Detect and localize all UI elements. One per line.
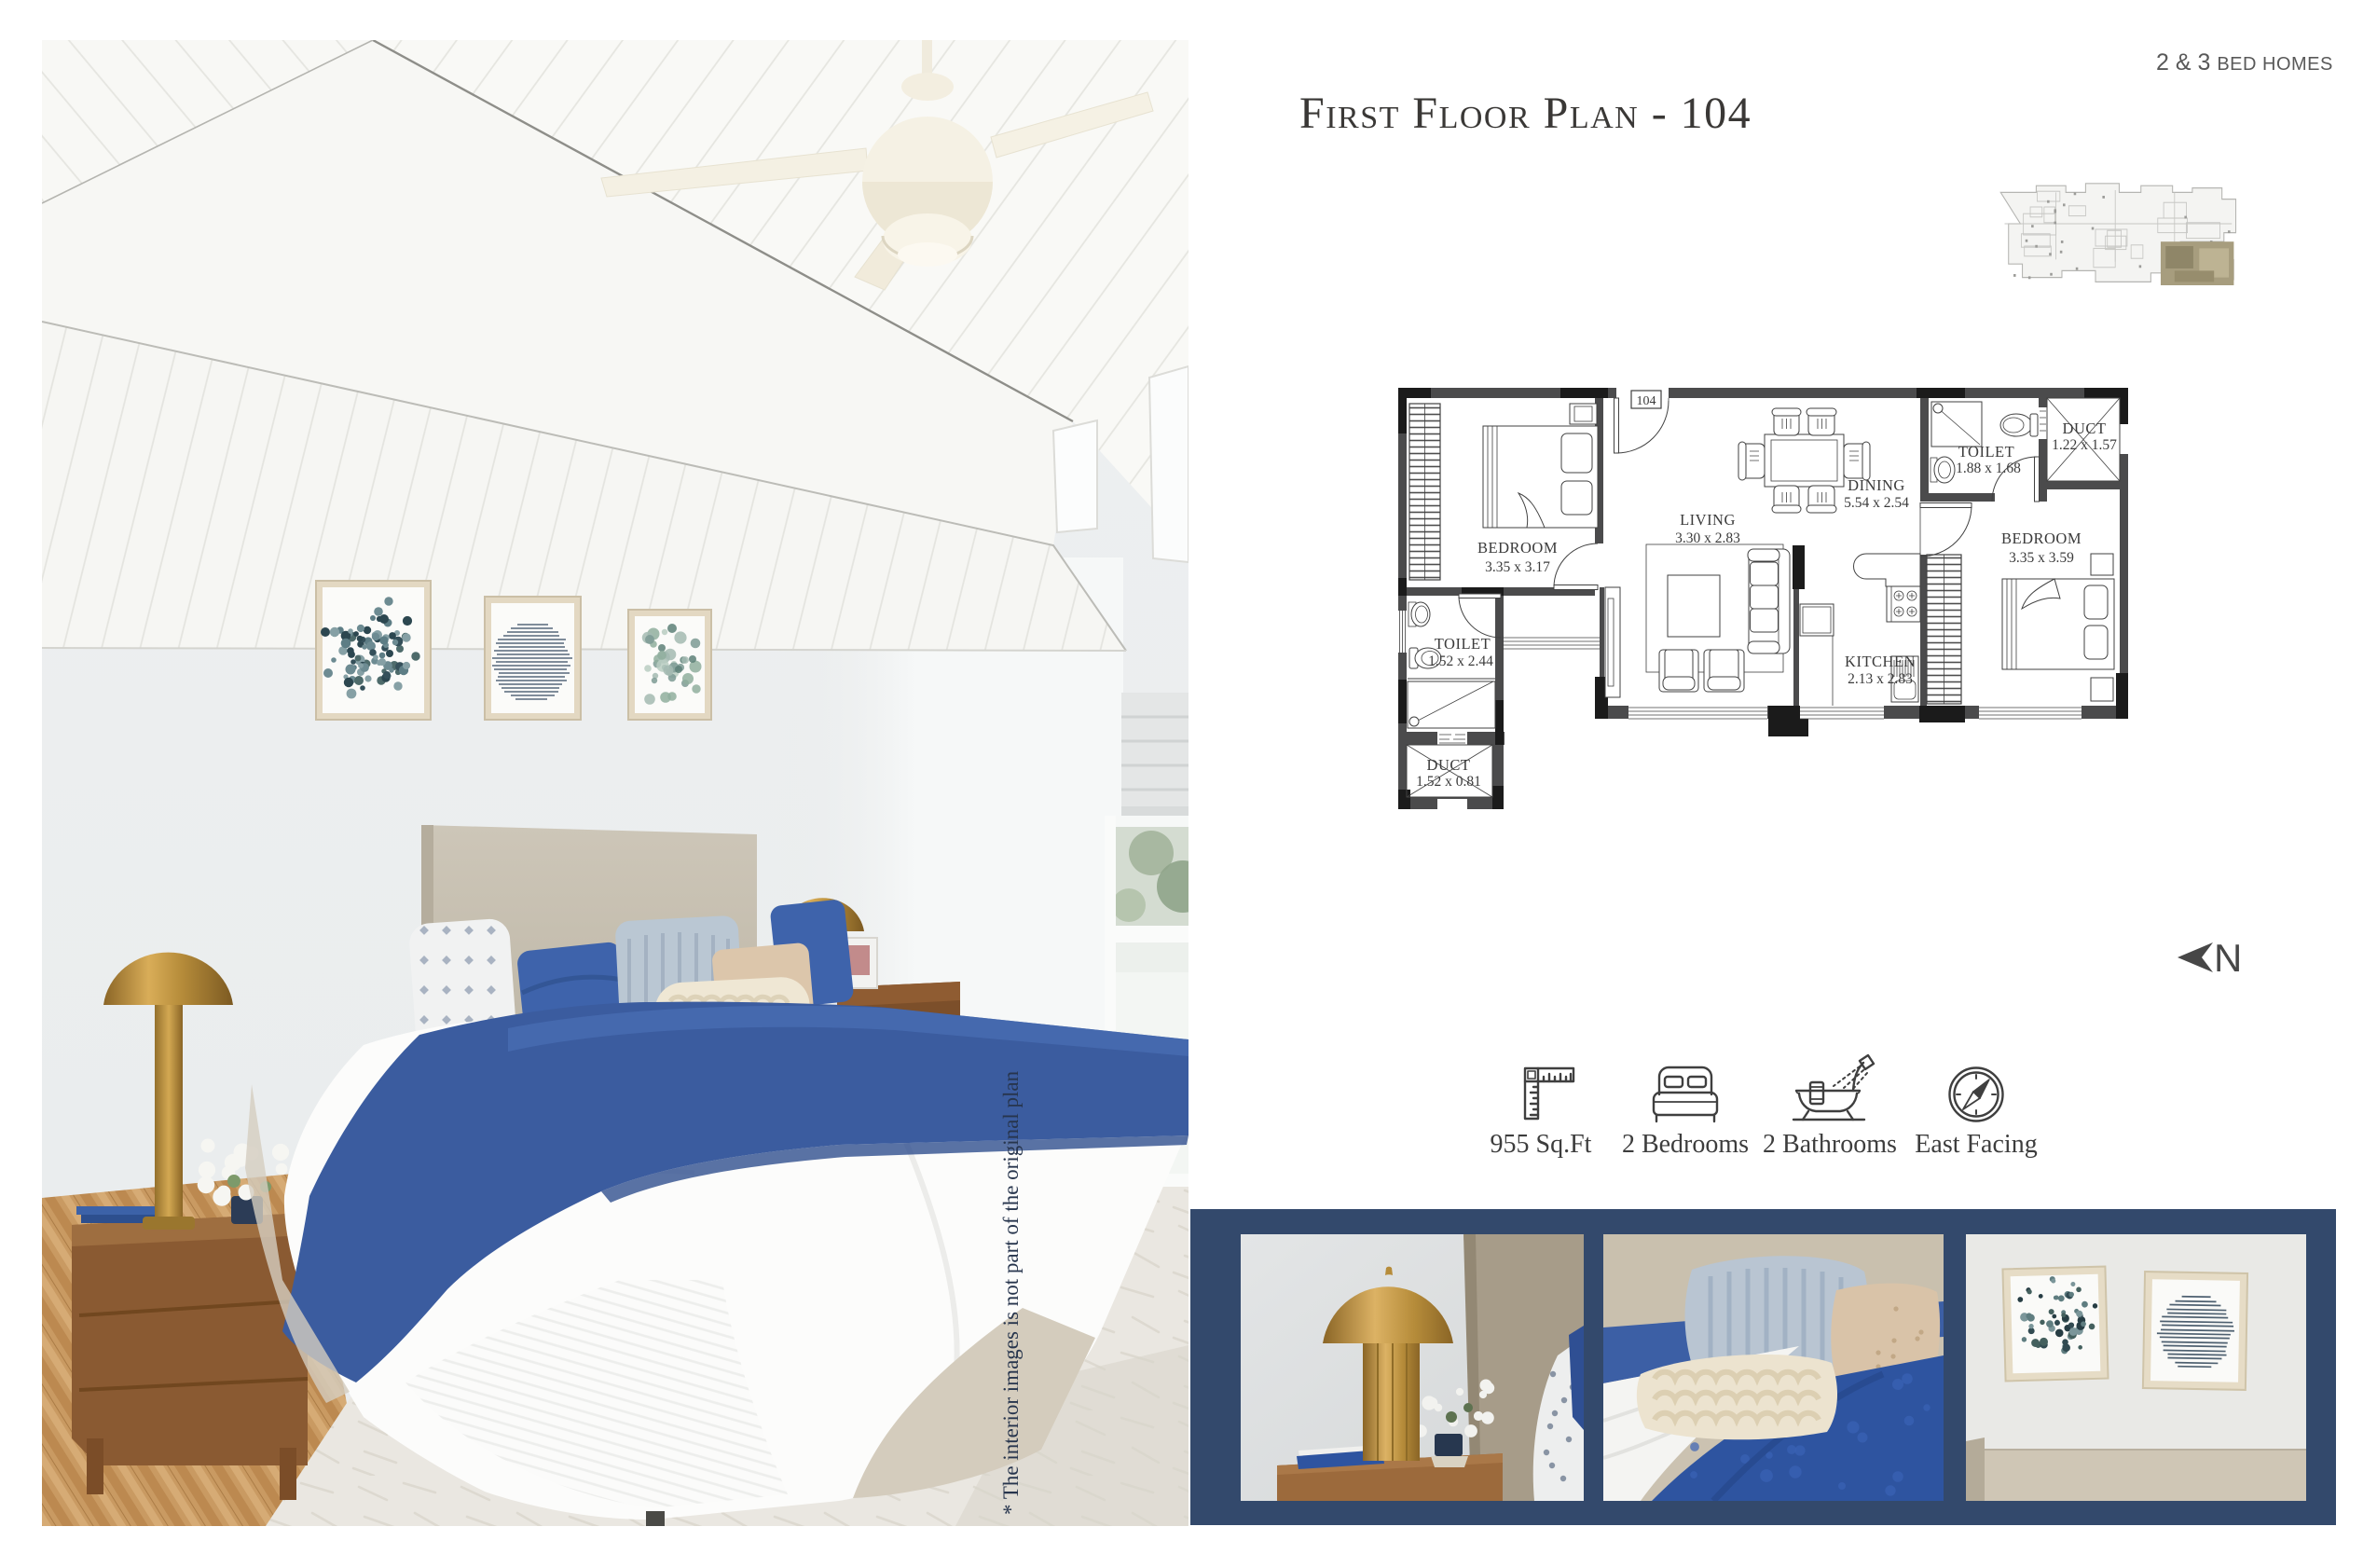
svg-text:955 Sq.Ft: 955 Sq.Ft: [1491, 1130, 1592, 1159]
svg-text:BEDROOM: BEDROOM: [1477, 539, 1558, 557]
svg-text:104: 104: [1637, 394, 1656, 408]
svg-text:N: N: [2214, 938, 2241, 975]
svg-text:2 Bathrooms: 2 Bathrooms: [1763, 1130, 1897, 1159]
svg-text:TOILET: TOILET: [1958, 443, 2014, 461]
svg-text:KITCHEN: KITCHEN: [1845, 653, 1916, 670]
svg-text:DUCT: DUCT: [1427, 756, 1471, 774]
svg-text:TOILET: TOILET: [1435, 635, 1491, 653]
svg-text:1.88 x 1.68: 1.88 x 1.68: [1956, 461, 2021, 476]
svg-text:3.30 x 2.83: 3.30 x 2.83: [1675, 530, 1740, 546]
svg-text:3.35 x 3.17: 3.35 x 3.17: [1485, 559, 1550, 575]
svg-text:DUCT: DUCT: [2063, 420, 2107, 437]
svg-text:LIVING: LIVING: [1680, 511, 1736, 529]
svg-text:2.13 x 2.83: 2.13 x 2.83: [1848, 671, 1913, 687]
svg-text:BEDROOM: BEDROOM: [2001, 530, 2082, 547]
svg-text:1.52 x 2.44: 1.52 x 2.44: [1428, 653, 1493, 669]
svg-text:1.52 x 0.81: 1.52 x 0.81: [1416, 774, 1481, 790]
svg-text:1.22 x 1.57: 1.22 x 1.57: [2052, 437, 2117, 453]
svg-text:2 Bedrooms: 2 Bedrooms: [1622, 1130, 1749, 1159]
svg-text:5.54 x 2.54: 5.54 x 2.54: [1844, 495, 1909, 511]
svg-text:East Facing: East Facing: [1915, 1130, 2037, 1159]
svg-text:DINING: DINING: [1848, 476, 1905, 494]
svg-text:3.35 x 3.59: 3.35 x 3.59: [2009, 550, 2074, 566]
